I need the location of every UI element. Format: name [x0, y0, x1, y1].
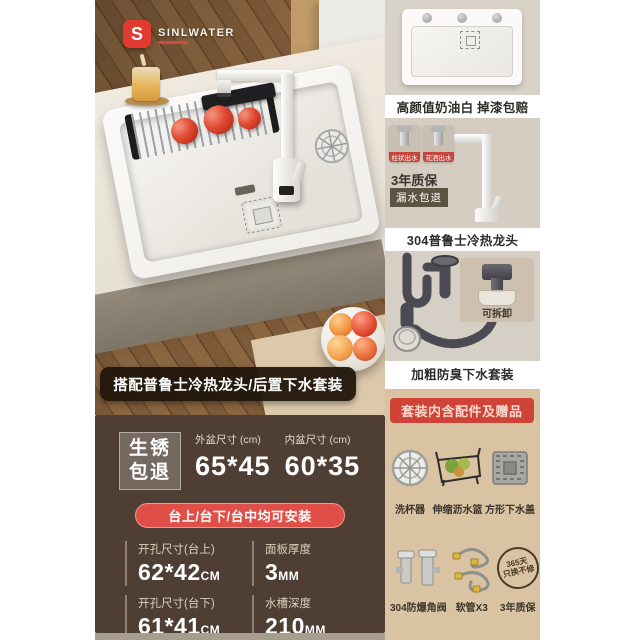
peach — [327, 335, 353, 361]
bottom-shadow-strip — [95, 633, 385, 640]
drink-glass — [125, 58, 169, 106]
panel-faucet: 柱状出水 花洒出水 3年质保 漏水包退 — [385, 118, 540, 228]
cup-washer-icon — [390, 435, 430, 501]
water-mode-tag: 柱状出水 — [389, 152, 420, 162]
faucet-stem — [281, 74, 293, 162]
nozzle-icon — [434, 130, 443, 146]
fruit-bowl — [321, 307, 385, 371]
inner-size-label: 内盆尺寸 (cm) — [285, 432, 361, 447]
peach — [329, 313, 353, 337]
warranty-stamp: 365天 只换不修 — [493, 543, 540, 593]
panel-drain-set: 可拆卸 — [385, 251, 540, 361]
dimension-value: 3MM — [265, 559, 379, 586]
glass-body — [132, 67, 160, 101]
water-mode-tag: 花洒出水 — [423, 152, 454, 162]
rust-guarantee-box: 生锈 包退 — [119, 432, 181, 490]
faucet-spout-head — [217, 80, 231, 97]
dimension-label: 面板厚度 — [265, 541, 379, 557]
dimension-grid: 开孔尺寸(台上) 62*42CM 面板厚度 3MM 开孔尺寸(台下) 61*41… — [95, 528, 385, 640]
faucet-stem — [482, 134, 492, 210]
tomato — [169, 116, 200, 147]
hose-icon — [447, 537, 497, 599]
inner-size: 内盆尺寸 (cm) 60*35 — [285, 432, 361, 482]
drain-basket-icon — [432, 435, 484, 501]
main-photo: S SINLWATER 搭配普鲁士冷热龙头/后置下水套装 — [95, 0, 385, 415]
detachable-inset: 可拆卸 — [460, 258, 534, 322]
rust-guarantee-line1: 生锈 — [129, 437, 171, 461]
kit-item-square-drain-cover: 方形下水盖 — [485, 435, 535, 516]
outer-size: 外盆尺寸 (cm) 65*45 — [195, 432, 271, 482]
cup-washer-icon — [311, 125, 353, 167]
brand-name: SINLWATER — [158, 27, 235, 39]
dimension-value: 62*42CM — [138, 559, 252, 586]
sink-top-view — [402, 9, 522, 85]
sink-top-drain — [460, 31, 480, 49]
product-promo-image: S SINLWATER 搭配普鲁士冷热龙头/后置下水套装 生锈 包退 外盆尺寸 … — [0, 0, 640, 640]
install-options-pill: 台上/台下/台中均可安装 — [135, 503, 345, 528]
faucet-hole — [492, 13, 502, 23]
brand-logo-underline — [158, 41, 188, 44]
feature-column: 高颜值奶油白 掉漆包赔 柱状出水 花洒出水 3年质保 漏水包退 304普鲁士冷热… — [385, 0, 540, 640]
warranty-stamp-icon: 365天 只换不修 — [497, 537, 539, 599]
kit-item-hoses: 软管X3 — [447, 537, 497, 614]
kit-header-badge: 套装内含配件及赠品 — [390, 398, 534, 423]
panel-kit: 套装内含配件及赠品 洗杯器 — [385, 389, 540, 640]
photo-banner: 搭配普鲁士冷热龙头/后置下水套装 — [100, 367, 356, 401]
faucet-base — [273, 158, 300, 202]
inner-size-value: 60*35 — [285, 451, 361, 482]
garnish-sprig — [140, 54, 147, 67]
dimension-label: 开孔尺寸(台上) — [138, 541, 252, 557]
angle-valve-icon — [395, 537, 441, 599]
faucet-hole — [422, 13, 432, 23]
dimension-cell: 面板厚度 3MM — [252, 541, 379, 586]
panel-cream-sink — [385, 0, 540, 95]
tomato — [236, 105, 263, 131]
outer-size-label: 外盆尺寸 (cm) — [195, 432, 271, 447]
filter-cup-icon — [478, 290, 516, 306]
kit-row-1: 洗杯器 — [385, 435, 540, 516]
panel-cream-caption: 高颜值奶油白 掉漆包赔 — [385, 95, 540, 118]
dimension-cell: 开孔尺寸(台上) 62*42CM — [125, 541, 252, 586]
kit-row-2: 304防爆角阀 — [385, 537, 540, 614]
leak-refund-tag: 漏水包退 — [390, 188, 448, 207]
panel-faucet-caption: 304普鲁士冷热龙头 — [385, 228, 540, 251]
dimension-label: 水槽深度 — [265, 595, 379, 611]
kit-item-angle-valves: 304防爆角阀 — [390, 537, 447, 614]
kit-item-warranty: 365天 只换不修 3年质保 — [497, 537, 539, 614]
panel-drain-caption: 加粗防臭下水套装 — [385, 361, 540, 385]
nozzle-icon — [400, 130, 409, 146]
faucet-base — [475, 208, 499, 222]
kit-item-drain-basket: 伸缩沥水篮 — [432, 435, 484, 516]
detachable-tag: 可拆卸 — [460, 305, 534, 320]
peach — [353, 337, 377, 361]
faucet-hole — [457, 13, 467, 23]
peach — [351, 311, 377, 337]
warranty-text: 3年质保 — [391, 170, 437, 189]
pipe-tee-icon — [482, 264, 512, 280]
brand-logo: S SINLWATER — [123, 20, 235, 48]
outer-size-value: 65*45 — [195, 451, 271, 482]
temperature-display — [279, 186, 294, 195]
water-mode-inset: 柱状出水 — [389, 125, 420, 162]
rust-guarantee-line2: 包退 — [129, 461, 171, 485]
kit-item-cup-washer: 洗杯器 — [390, 435, 430, 516]
dimension-label: 开孔尺寸(台下) — [138, 595, 252, 611]
brand-logo-icon: S — [123, 20, 151, 48]
spec-panel: 生锈 包退 外盆尺寸 (cm) 65*45 内盆尺寸 (cm) 60*35 台上… — [95, 415, 385, 633]
water-mode-inset: 花洒出水 — [423, 125, 454, 162]
square-drain-cover-icon — [491, 435, 529, 501]
